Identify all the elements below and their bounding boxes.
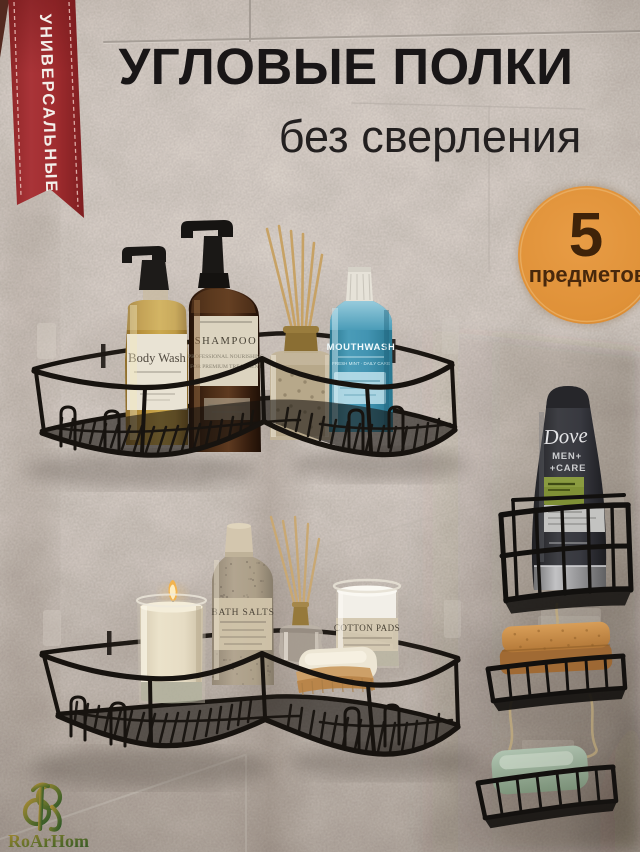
- svg-text:5: 5: [569, 201, 603, 270]
- svg-text:предметов: предметов: [529, 262, 640, 287]
- svg-text:RoArHom: RoArHom: [8, 831, 89, 851]
- svg-text:без сверления: без сверления: [279, 111, 582, 162]
- svg-text:УГЛОВЫЕ ПОЛКИ: УГЛОВЫЕ ПОЛКИ: [119, 38, 574, 95]
